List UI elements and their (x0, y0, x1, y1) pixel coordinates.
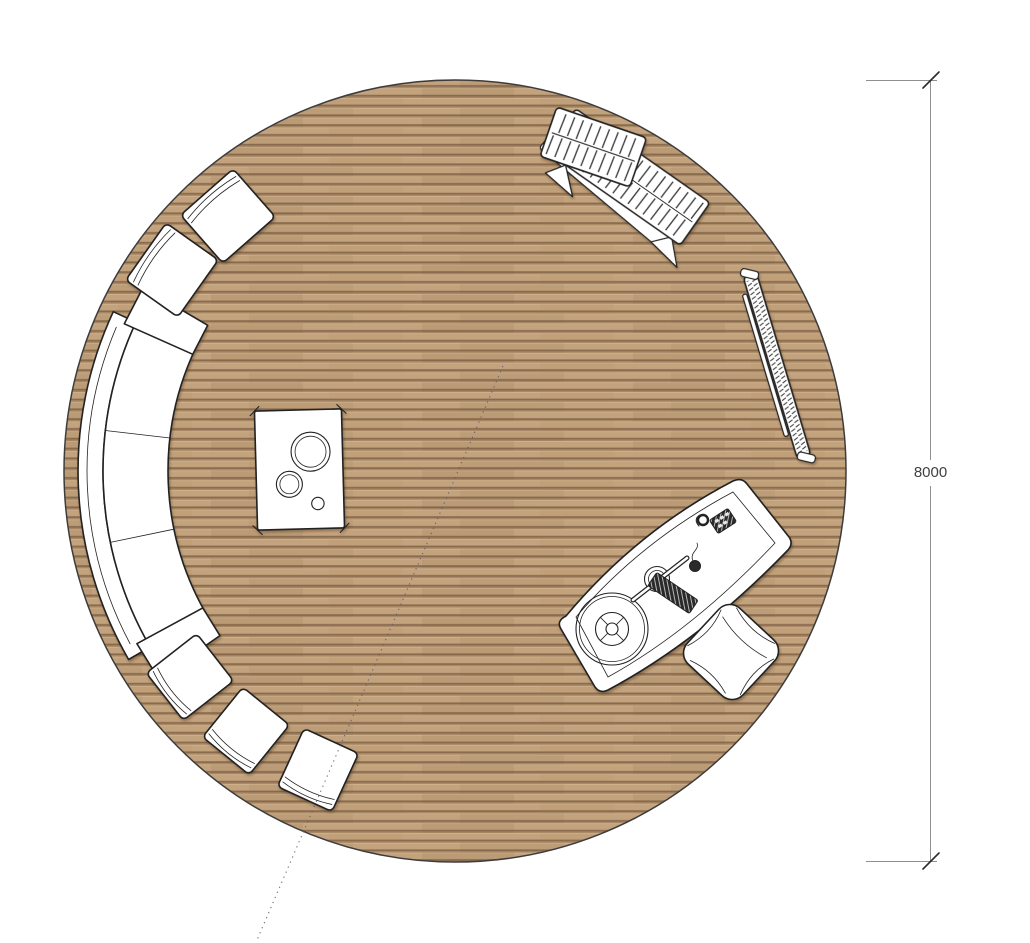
dimension-label: 8000 (914, 464, 947, 481)
floor-plan-page: 8000 (0, 0, 1030, 943)
floor-plan-canvas: 8000 (0, 0, 1030, 943)
stove-unit (250, 404, 349, 534)
dimension-8000: 8000 (866, 72, 947, 869)
round-deck-floor (64, 80, 846, 862)
stove-body (254, 409, 344, 530)
wood-grain-overlay (64, 80, 846, 862)
